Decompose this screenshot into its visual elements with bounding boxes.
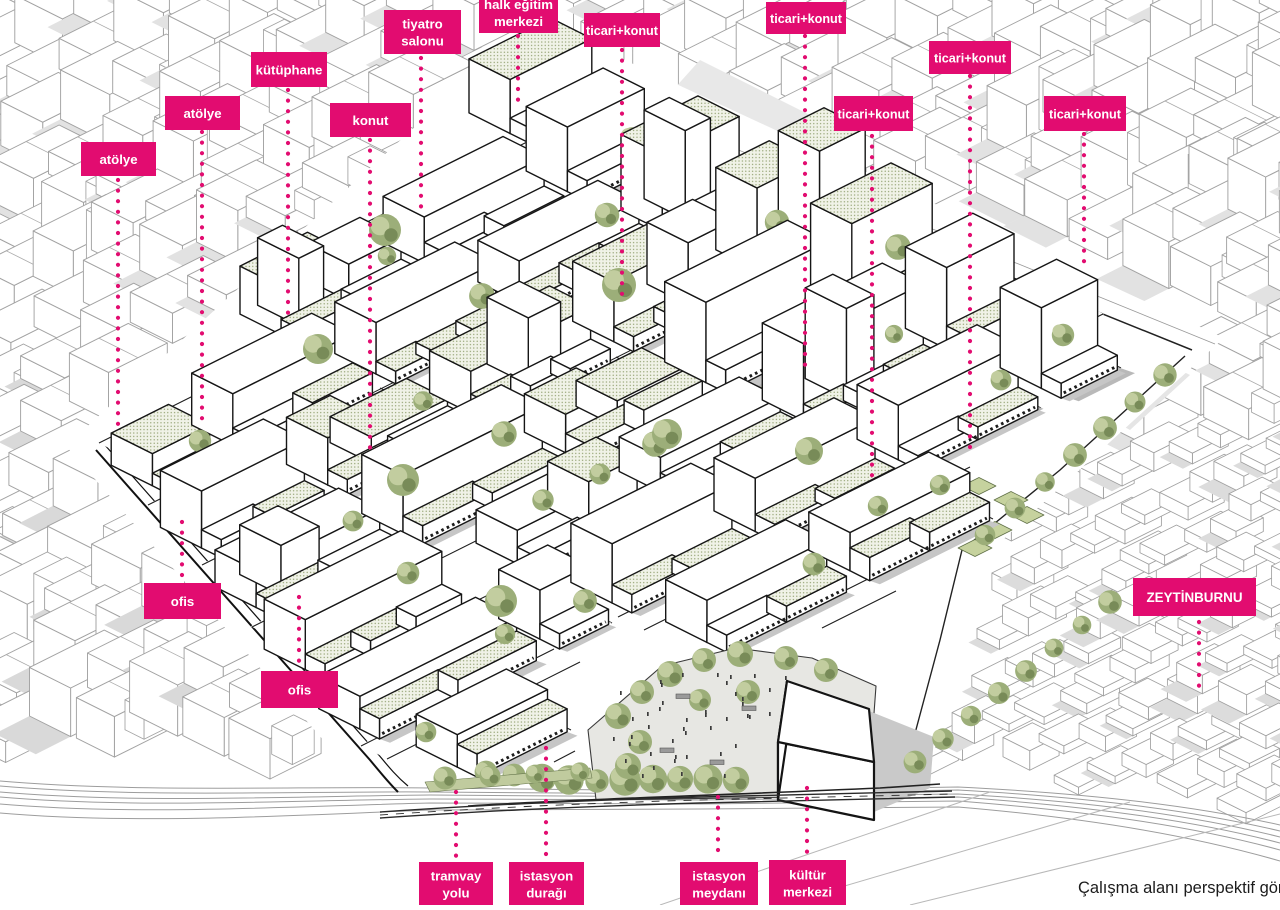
svg-text:durağı: durağı [526,885,566,900]
svg-text:merkezi: merkezi [783,884,832,899]
svg-text:tramvay: tramvay [431,868,482,883]
svg-text:meydanı: meydanı [692,885,746,900]
svg-text:ofis: ofis [171,594,194,609]
svg-text:Çalışma alanı perspektif görün: Çalışma alanı perspektif görünümü [1078,879,1280,897]
svg-text:istasyon: istasyon [692,868,746,883]
svg-text:ticari+konut: ticari+konut [770,11,843,26]
svg-text:kültür: kültür [789,867,826,882]
svg-text:atölye: atölye [99,152,137,167]
svg-text:ZEYTİNBURNU: ZEYTİNBURNU [1147,590,1243,605]
svg-text:ticari+konut: ticari+konut [586,23,659,38]
svg-text:atölye: atölye [183,106,221,121]
svg-text:halk eğitim: halk eğitim [484,0,553,12]
svg-text:merkezi: merkezi [494,14,543,29]
svg-text:konut: konut [353,113,390,128]
svg-text:salonu: salonu [401,33,444,48]
svg-text:ticari+konut: ticari+konut [838,106,911,121]
svg-text:ticari+konut: ticari+konut [1049,106,1122,121]
svg-text:tiyatro: tiyatro [402,16,442,31]
svg-text:ticari+konut: ticari+konut [934,50,1007,65]
svg-text:istasyon: istasyon [520,868,574,883]
svg-text:ofis: ofis [288,682,311,697]
svg-text:yolu: yolu [442,885,469,900]
svg-text:kütüphane: kütüphane [256,62,323,77]
